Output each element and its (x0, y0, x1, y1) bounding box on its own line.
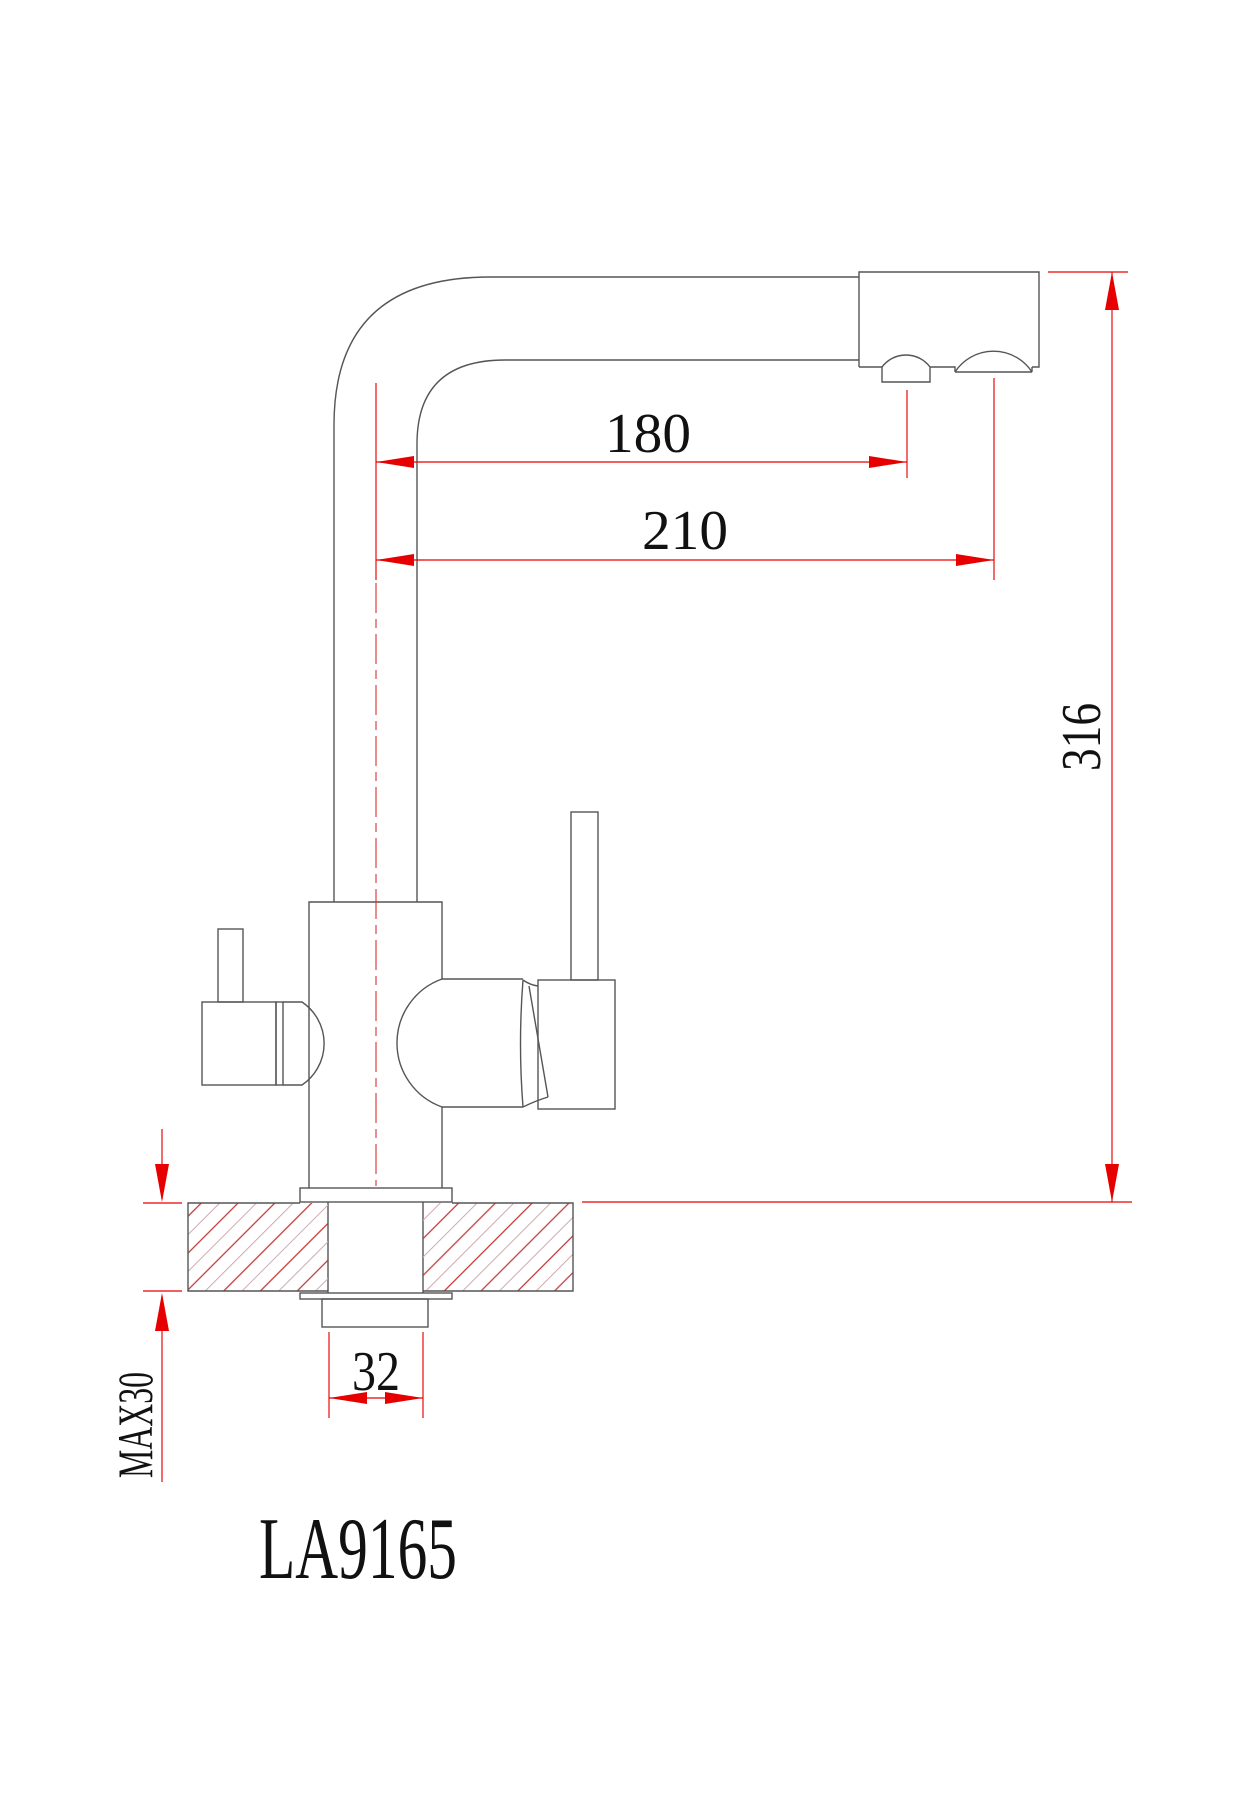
faucet-dimension-drawing: 180 210 316 32 MAX30 LA9165 (0, 0, 1255, 1800)
arrowhead-left-icon (376, 554, 414, 566)
threaded-shank (328, 1202, 423, 1293)
countertop-hatch-left (188, 1203, 328, 1291)
model-number-label: LA9165 (259, 1501, 457, 1598)
dim-label-210: 210 (642, 500, 728, 562)
technical-drawing-page: 180 210 316 32 MAX30 LA9165 (0, 0, 1255, 1800)
dimension-32: 32 (329, 1332, 423, 1418)
spout-arm-outline (334, 277, 859, 902)
mounting-nut (322, 1299, 428, 1327)
aerator-large-outlet (955, 351, 1032, 372)
dim-label-316: 316 (1051, 703, 1113, 771)
arrowhead-right-icon (956, 554, 994, 566)
dim-label-max30: MAX30 (107, 1372, 163, 1478)
left-handle-ring (276, 1002, 283, 1085)
base-flange (300, 1188, 452, 1202)
spout-head (859, 272, 1039, 372)
countertop-section (188, 1203, 573, 1291)
right-handle (397, 812, 615, 1109)
arrowhead-down-icon (155, 1164, 169, 1202)
countertop-hatch-right (423, 1203, 573, 1291)
left-handle-cap (283, 1002, 324, 1085)
left-handle (202, 929, 324, 1085)
arrowhead-up-icon (1105, 272, 1119, 310)
dim-label-32: 32 (352, 1341, 400, 1403)
arrowhead-up-icon (155, 1293, 169, 1331)
right-handle-lever (571, 812, 598, 980)
left-handle-lever (218, 929, 243, 1002)
right-handle-cup (538, 980, 615, 1109)
dim-label-180: 180 (605, 403, 691, 465)
arrowhead-down-icon (1105, 1164, 1119, 1202)
washer (300, 1293, 452, 1299)
arrowhead-left-icon (376, 456, 414, 468)
handle-collar (521, 980, 549, 1107)
aerator-small-outlet (882, 355, 930, 382)
valve-sphere (397, 979, 442, 1107)
dimension-max30: MAX30 (107, 1129, 182, 1482)
arrowhead-right-icon (869, 456, 907, 468)
left-handle-body (202, 1002, 276, 1085)
